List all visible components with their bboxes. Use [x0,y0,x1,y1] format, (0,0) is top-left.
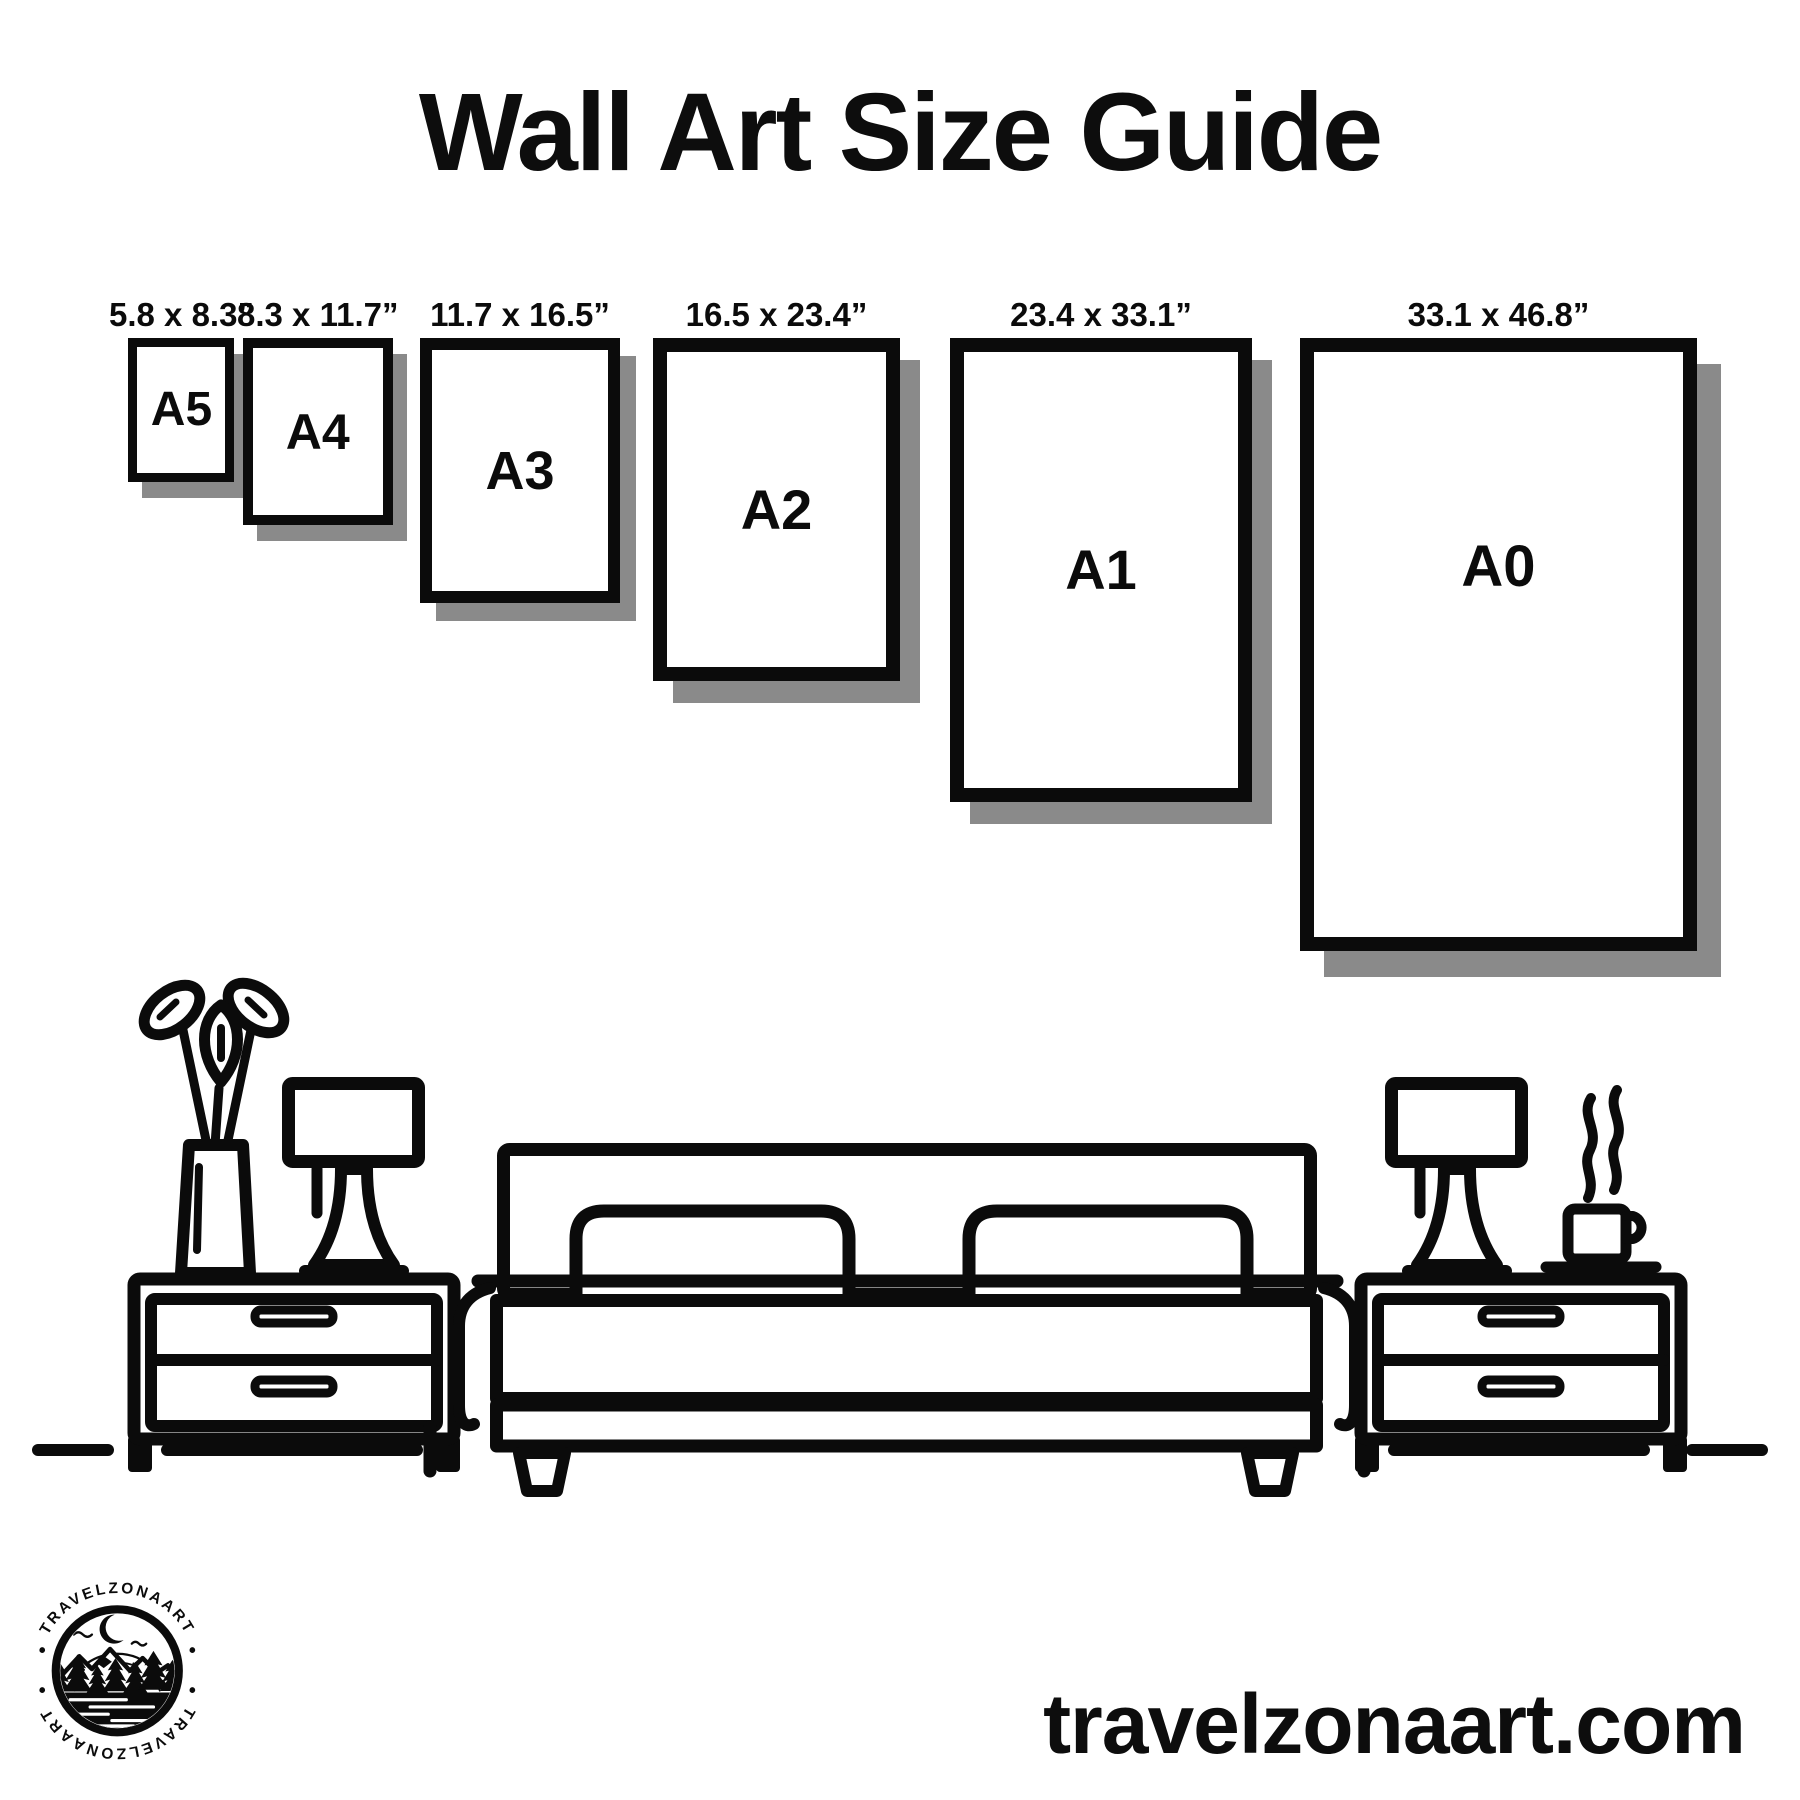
paper-a1: A1 [950,338,1252,802]
size-frame-a1: 23.4 x 33.1” A1 [950,292,1252,802]
page-title: Wall Art Size Guide [0,78,1800,188]
table-lamp-right-icon [1392,1084,1522,1272]
crescent-moon-icon [100,1615,124,1644]
size-frame-a3: 11.7 x 16.5” A3 [420,292,620,603]
nightstand-right-icon [1355,1279,1687,1472]
steaming-coffee-cup-icon [1546,1090,1656,1267]
paper-a2: A2 [653,338,900,681]
dimension-label-a1: 23.4 x 33.1” [1010,292,1192,338]
paper-a3: A3 [420,338,620,603]
potted-plant-icon [135,973,293,1273]
double-bed-icon [430,1150,1364,1492]
dimension-label-a0: 33.1 x 46.8” [1408,292,1590,338]
paper-size-code-a3: A3 [485,444,554,498]
dimension-label-a2: 16.5 x 23.4” [686,292,868,338]
size-frame-a0: 33.1 x 46.8” A0 [1300,292,1697,951]
dimension-label-a5: 5.8 x 8.3” [109,292,254,338]
paper-size-code-a2: A2 [741,482,813,538]
dimension-label-a4: 8.3 x 11.7” [237,292,398,338]
bedroom-scene-illustration [0,920,1800,1520]
size-frame-a2: 16.5 x 23.4” A2 [653,292,900,681]
nightstand-left-icon [128,1279,460,1472]
website-url: travelzonaart.com [1043,1682,1745,1766]
logo-separator-dot: • [189,1640,196,1662]
logo-separator-dot: • [39,1640,46,1662]
bird-icon [132,1642,146,1646]
dimension-label-a3: 11.7 x 16.5” [430,292,610,338]
logo-separator-dot: • [39,1680,46,1702]
paper-a5: A5 [128,338,234,482]
table-lamp-left-icon [289,1084,419,1272]
logo-separator-dot: • [189,1680,196,1702]
paper-size-code-a5: A5 [151,386,212,434]
size-frame-a4: 8.3 x 11.7” A4 [237,292,398,525]
size-frame-a5: 5.8 x 8.3” A5 [109,292,254,482]
wall-art-size-guide-poster: Wall Art Size Guide 5.8 x 8.3” A5 8.3 x … [0,0,1800,1800]
paper-size-code-a4: A4 [286,407,350,457]
paper-a0: A0 [1300,338,1697,951]
paper-size-code-a1: A1 [1065,542,1137,598]
brand-logo-badge: TRAVELZONAART TRAVELZONAART • • • • [25,1556,215,1791]
bird-icon [74,1632,92,1637]
paper-size-code-a0: A0 [1461,352,1535,596]
paper-a4: A4 [243,338,393,525]
